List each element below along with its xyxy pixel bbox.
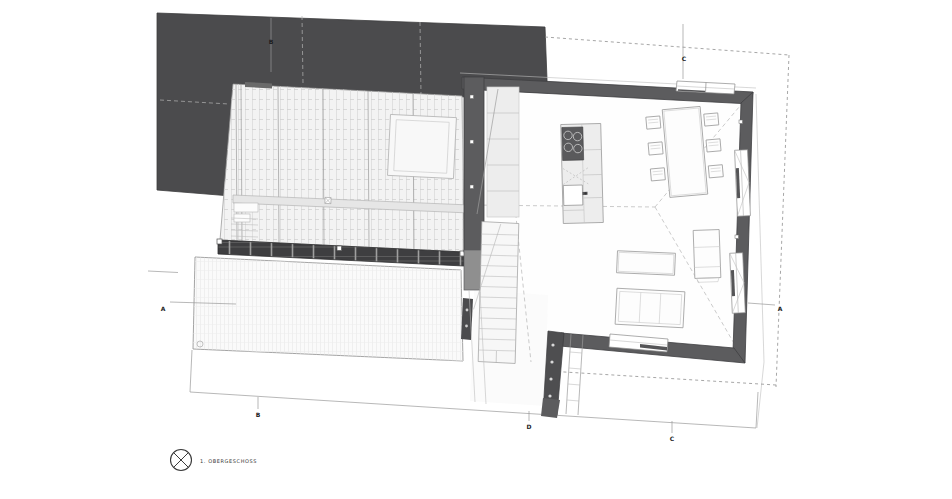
kitchen-island <box>561 123 604 223</box>
east-window-2 <box>730 253 746 314</box>
roof-terrace <box>193 257 463 361</box>
entry-wing-corner <box>541 398 560 418</box>
skylight <box>388 114 457 178</box>
railing-post <box>217 239 222 244</box>
floor-plan-drawing: B C A A B D C 1. OB <box>0 0 952 499</box>
beam-joint-marker <box>325 197 331 203</box>
glass-roof <box>220 82 470 252</box>
svg-text:B: B <box>269 38 274 45</box>
svg-text:D: D <box>527 423 532 430</box>
svg-text:C: C <box>670 435 675 442</box>
floor-plan-page: B C A A B D C 1. OB <box>0 0 952 499</box>
coffee-table <box>617 251 676 276</box>
sofa <box>615 288 685 328</box>
floor-title: 1. OBERGESCHOSS <box>200 458 257 464</box>
cooktop <box>562 127 584 161</box>
svg-text:B: B <box>256 411 261 418</box>
svg-text:A: A <box>778 305 783 312</box>
dining-table <box>662 106 708 197</box>
east-window-1 <box>735 150 751 217</box>
armchair <box>693 230 721 283</box>
svg-text:A: A <box>161 305 166 312</box>
west-wall <box>464 77 484 252</box>
svg-text:C: C <box>682 55 687 62</box>
railing-post <box>337 246 342 251</box>
